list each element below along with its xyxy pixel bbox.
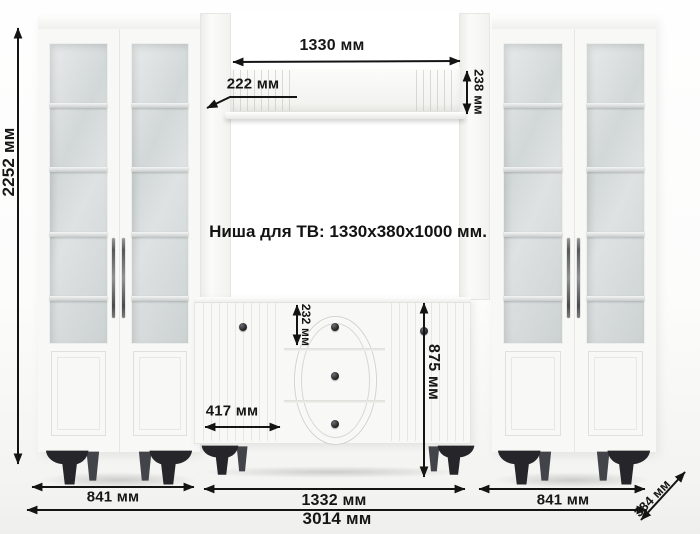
door-handle: [122, 238, 125, 318]
interior-shelf: [132, 103, 189, 108]
dresser-door-left: [196, 303, 283, 441]
niche-side-panel-right: [459, 13, 490, 300]
door-handle: [567, 238, 570, 318]
interior-shelf: [504, 167, 562, 172]
dresser-leg: [426, 444, 476, 478]
door-handle: [112, 238, 115, 318]
tv-niche-label: Ниша для ТВ: 1330x380x1000 мм.: [209, 222, 487, 242]
interior-shelf: [132, 232, 189, 237]
dim-center-width-label: 1332 мм: [301, 492, 366, 510]
dim-shelf-depth-label: 222 мм: [227, 76, 280, 93]
furniture-diagram: Ниша для ТВ: 1330x380x1000 мм.: [0, 0, 700, 534]
left-cabinet-doors: [38, 29, 200, 452]
interior-shelf: [50, 232, 107, 237]
dim-total-width-label: 3014 мм: [302, 509, 371, 529]
lower-panel-frame: [51, 351, 106, 436]
interior-shelf: [504, 103, 562, 108]
interior-shelf: [504, 232, 562, 237]
dim-dresser-height-label: 875 мм: [424, 344, 442, 400]
lower-panel-frame: [505, 351, 561, 436]
lower-panel-frame: [133, 351, 188, 436]
interior-shelf: [504, 296, 562, 301]
interior-shelf: [50, 296, 107, 301]
dim-door-width-label: 417 мм: [206, 403, 259, 420]
left-cabinet-crown: [38, 16, 200, 30]
shelf-ledge: [225, 112, 465, 119]
interior-shelf: [50, 167, 107, 172]
shelf-fluting-right: [416, 70, 458, 111]
interior-shelf: [587, 167, 645, 172]
door-knob: [420, 327, 428, 335]
glass-panel: [49, 43, 108, 344]
dim-drawer-height-label: 232 мм: [299, 304, 313, 346]
glass-panel: [586, 43, 646, 344]
glass-door: [492, 29, 575, 452]
door-knob: [239, 323, 247, 331]
drawer-knob: [331, 372, 339, 380]
dresser-leg: [200, 444, 250, 478]
drawer-divider: [284, 348, 385, 351]
niche-side-panel-left: [200, 13, 231, 300]
cabinet-leg: [136, 450, 194, 487]
interior-shelf: [587, 103, 645, 108]
glass-panel: [131, 43, 190, 344]
left-display-cabinet: [38, 16, 200, 452]
door-handle: [577, 238, 580, 318]
dim-total-height-label: 2252 мм: [0, 127, 19, 196]
right-display-cabinet: [492, 16, 656, 452]
tv-niche: [231, 13, 459, 300]
drawer-knob: [331, 420, 339, 428]
dim-shelf-length-label: 1330 мм: [299, 37, 364, 55]
right-cabinet-doors: [492, 29, 656, 452]
interior-shelf: [132, 296, 189, 301]
glass-door: [38, 29, 120, 452]
cabinet-leg: [594, 450, 652, 487]
interior-shelf: [50, 103, 107, 108]
drawer-divider: [284, 400, 385, 403]
cabinet-leg: [496, 450, 554, 487]
dim-left-width-label: 841 мм: [87, 489, 140, 506]
drawer-knob: [331, 323, 339, 331]
glass-door: [575, 29, 657, 452]
interior-shelf: [132, 167, 189, 172]
lower-panel-frame: [588, 351, 644, 436]
glass-door: [120, 29, 201, 452]
right-cabinet-crown: [492, 16, 656, 30]
dim-right-width-label: 841 мм: [537, 492, 590, 509]
interior-shelf: [587, 232, 645, 237]
glass-panel: [503, 43, 563, 344]
interior-shelf: [587, 296, 645, 301]
dim-shelf-height-label: 238 мм: [472, 69, 487, 115]
cabinet-leg: [44, 450, 102, 487]
